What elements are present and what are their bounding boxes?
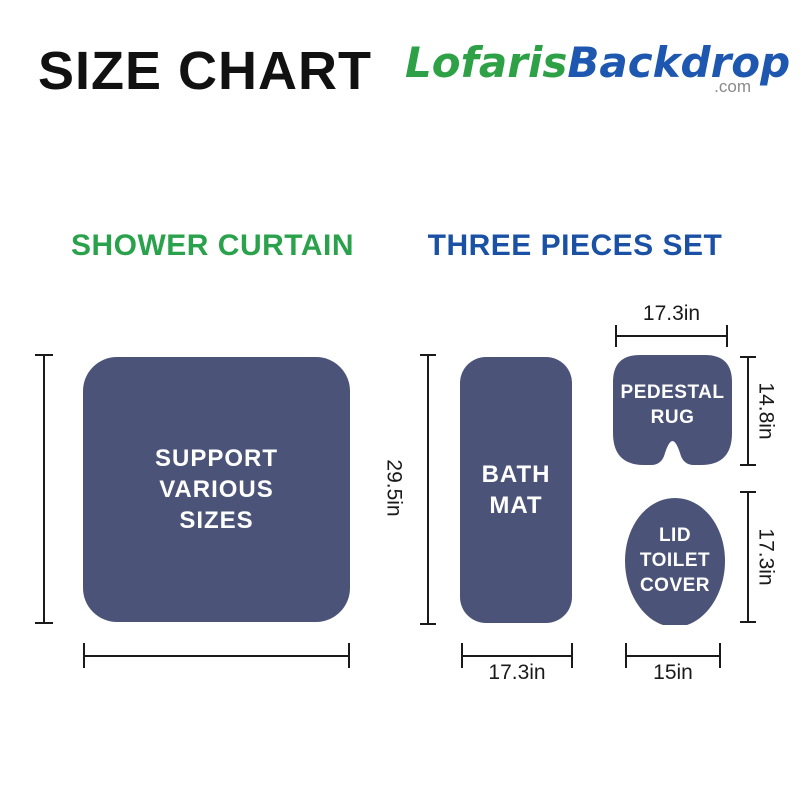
shower-curtain-shape: SUPPORT VARIOUS SIZES [83, 357, 350, 622]
lid-toilet-cover-label: LID TOILET COVER [640, 524, 710, 598]
brand-logo: LofarisBackdrop .com [405, 40, 765, 97]
pedestal-rug-width-value: 17.3in [613, 303, 730, 324]
three-pieces-heading: THREE PIECES SET [410, 231, 740, 261]
bath-mat-shape: BATH MAT [460, 357, 572, 623]
lid-toilet-cover-height-value: 17.3in [756, 528, 777, 585]
bath-mat-width-value: 17.3in [461, 662, 573, 683]
bath-mat-height-value: 29.5in [384, 459, 405, 516]
logo-backdrop: Backdrop [567, 38, 790, 87]
lid-toilet-cover-width-value: 15in [625, 662, 721, 683]
lid-toilet-cover-shape: LID TOILET COVER [625, 498, 725, 625]
pedestal-rug-label: PEDESTAL RUG [621, 381, 725, 438]
shower-curtain-width-dimension-line [83, 643, 350, 668]
logo-lofaris: Lofaris [405, 38, 567, 87]
shower-curtain-heading: SHOWER CURTAIN [40, 231, 385, 261]
shower-curtain-height-dimension-line [35, 354, 53, 624]
bath-mat-label: BATH MAT [482, 459, 551, 521]
page-title: SIZE CHART [38, 44, 372, 98]
size-chart-page: SIZE CHART LofarisBackdrop .com SHOWER C… [0, 0, 800, 800]
pedestal-rug-height-value: 14.8in [756, 382, 777, 439]
bath-mat-height-dimension-line [420, 354, 436, 625]
shower-curtain-label: SUPPORT VARIOUS SIZES [155, 443, 278, 537]
pedestal-rug-shape: PEDESTAL RUG [613, 355, 732, 465]
pedestal-rug-width-dimension-line [615, 325, 728, 347]
